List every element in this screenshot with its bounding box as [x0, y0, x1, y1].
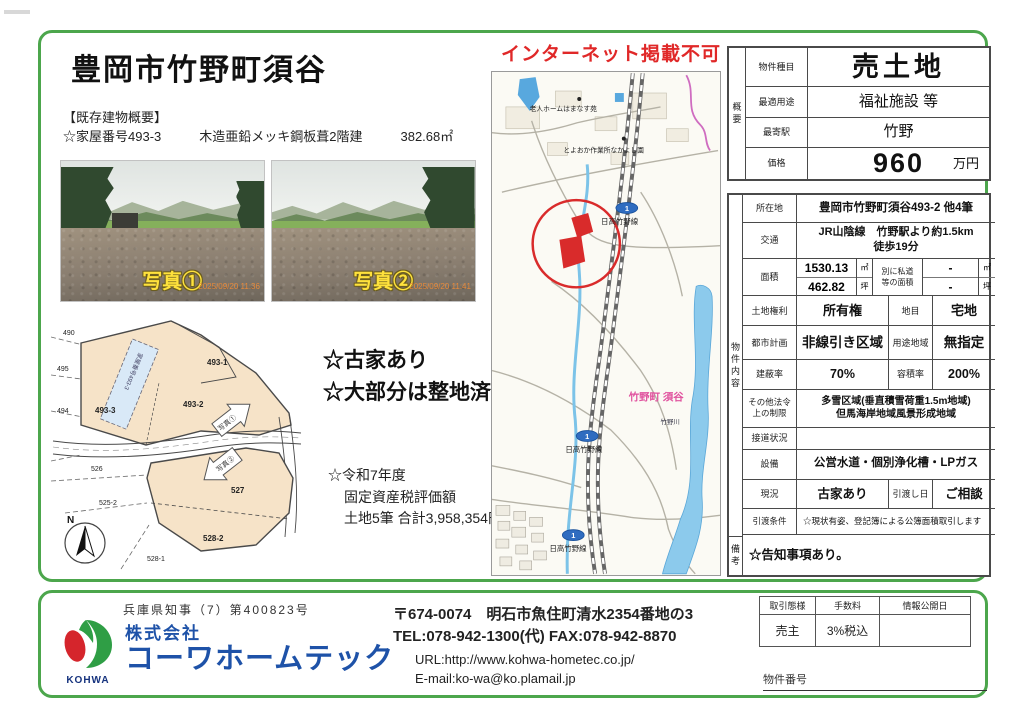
tax-label: 固定資産税評価額	[328, 487, 502, 509]
license-number: 兵庫県知事（7）第400823号	[123, 601, 310, 618]
property-type-value: 売土地	[808, 48, 989, 86]
route-number: 1	[625, 204, 629, 213]
row-label: 都市計画	[743, 326, 797, 359]
summary-section-strip: 概要	[729, 48, 746, 179]
summary-row-station: 最寄駅 竹野	[746, 118, 989, 148]
small-pond	[615, 93, 624, 102]
nearest-station-value: 竹野	[808, 118, 989, 147]
row-label: 所在地	[743, 195, 797, 222]
parcel-label-494: 494	[57, 408, 69, 415]
property-number-label: 物件番号	[763, 671, 807, 687]
flyer-page: 豊岡市竹野町須谷 【既存建物概要】 ☆家屋番号493-3 木造亜鉛メッキ鋼板葺2…	[0, 0, 1024, 724]
main-frame: 豊岡市竹野町須谷 【既存建物概要】 ☆家屋番号493-3 木造亜鉛メッキ鋼板葺2…	[38, 30, 988, 582]
row-label: その他法令 上の制限	[743, 390, 797, 427]
private-tsubo-unit: 坪	[979, 278, 995, 296]
parcel-label-493-2: 493-2	[183, 400, 204, 409]
detail-section-strip: 物件内容 備考	[729, 195, 743, 575]
row-coverage: 建蔽率 70% 容積率 200%	[743, 360, 995, 390]
transaction-table: 取引態様 手数料 情報公開日 売主 3%税込	[759, 596, 971, 647]
postal-address: 〒674-0074 明石市魚住町清水2354番地の3	[393, 604, 693, 626]
summary-section-label: 概要	[729, 48, 745, 179]
parcel-label-527: 527	[231, 486, 245, 495]
address-block: 〒674-0074 明石市魚住町清水2354番地の3 TEL:078-942-1…	[393, 604, 693, 648]
other-law-value: 多雪区域(垂直積雪荷重1.5m地域) 但馬海岸地域風景形成地域	[797, 390, 995, 427]
building-structure: 木造亜鉛メッキ鋼板葺2階建	[199, 126, 362, 145]
house-number: ☆家屋番号493-3	[63, 126, 161, 145]
row-label: 用途地域	[889, 326, 933, 359]
facility2-dot	[622, 137, 626, 141]
property-number-field: 物件番号	[763, 667, 987, 691]
utilities-value: 公営水道・個別浄化槽・LPガス	[797, 450, 995, 479]
row-label: 土地権利	[743, 296, 797, 325]
area-tsubo-value: 462.82	[797, 278, 856, 296]
floor-area-ratio-value: 200%	[933, 360, 995, 389]
cadastral-map: 家屋番号493-3 490 495 494 493-3 493-1 493-2 …	[51, 313, 303, 577]
compass-n-label: N	[67, 515, 74, 526]
best-use-value: 福祉施設 等	[808, 87, 989, 116]
private-m2-unit: ㎡	[979, 259, 995, 278]
route-number: 1	[571, 531, 575, 540]
tax-year: ☆令和7年度	[328, 465, 502, 487]
handover-date-value: ご相談	[933, 480, 995, 509]
private-tsubo-value: -	[923, 278, 978, 296]
company-name: コーワホームテック	[125, 644, 394, 676]
private-m2-value: -	[923, 259, 978, 278]
site-photo-2: 写真② 2025/09/20 11:41	[271, 160, 476, 302]
row-label: 物件種目	[746, 48, 808, 86]
photo1-caption: 写真①	[142, 265, 202, 294]
parcel-label-526: 526	[91, 466, 103, 473]
scan-artifact	[4, 10, 30, 14]
company-name-block: 株式会社 コーワホームテック	[125, 619, 394, 676]
route-name: 日高竹野線	[549, 543, 587, 553]
row-location: 所在地 豊岡市竹野町須谷493-2 他4筆	[743, 195, 995, 223]
row-road-contact: 接道状況	[743, 428, 995, 450]
company-url: URL:http://www.kohwa-hometec.co.jp/	[415, 651, 635, 670]
price-unit: 万円	[953, 155, 979, 173]
row-utilities: 設備 公営水道・個別浄化槽・LPガス	[743, 450, 995, 480]
row-label: 建蔽率	[743, 360, 797, 389]
parcel-label-493-3: 493-3	[95, 406, 116, 415]
photo-shed	[112, 213, 138, 228]
remarks-value: ☆告知事項あり。	[743, 535, 995, 575]
row-city-plan: 都市計画 非線引き区域 用途地域 無指定	[743, 326, 995, 360]
row-label: 価格	[746, 148, 808, 179]
row-remarks: ☆告知事項あり。	[743, 535, 995, 575]
row-label: 接道状況	[743, 428, 797, 449]
photo2-timestamp: 2025/09/20 11:41	[409, 282, 471, 291]
row-area: 面積 1530.13 462.82 ㎡ 坪 別に私道 等の面積 - -	[743, 259, 995, 297]
row-label: 交通	[743, 223, 797, 258]
transaction-type-value: 売主	[760, 615, 816, 646]
private-road-units: ㎡ 坪	[979, 259, 995, 296]
company-prefix: 株式会社	[125, 619, 394, 644]
area-m2-unit: ㎡	[857, 259, 872, 278]
row-current-state: 現況 古家あり 引渡し日 ご相談	[743, 480, 995, 510]
row-label: 設備	[743, 450, 797, 479]
summary-table: 概要 物件種目 売土地 最適用途 福祉施設 等 最寄駅 竹野 価格	[727, 46, 991, 181]
river-label: 竹野川	[661, 417, 680, 426]
private-road-label: 別に私道 等の面積	[873, 259, 923, 296]
location-map: 老人ホームはまなす苑 とよおか作業所なかよし園 1 日高竹野線 1 日高竹野線 …	[491, 71, 721, 576]
land-rights-value: 所有権	[797, 296, 889, 325]
city-plan-value: 非線引き区域	[797, 326, 889, 359]
tax-notes: ☆令和7年度 固定資産税評価額 土地5筆 合計3,958,354円	[328, 465, 502, 530]
area-label: 竹野町 須谷	[628, 390, 684, 403]
row-access: 交通 JR山陰線 竹野駅より約1.5km 徒歩19分	[743, 223, 995, 259]
area-numbers: 1530.13 462.82	[797, 259, 857, 296]
transaction-type-header: 取引態様	[760, 597, 816, 614]
parcel-label-525-2: 525-2	[99, 500, 117, 507]
detail-table: 物件内容 備考 所在地 豊岡市竹野町須谷493-2 他4筆 交通 JR山陰線 竹…	[727, 193, 991, 577]
row-handover-terms: 引渡条件 ☆現状有姿、登記簿による公簿面積取引します	[743, 509, 995, 535]
access-value: JR山陰線 竹野駅より約1.5km 徒歩19分	[797, 223, 995, 258]
area-units: ㎡ 坪	[857, 259, 873, 296]
company-email: E-mail:ko-wa@ko.plamail.jp	[415, 670, 635, 689]
footer-frame: 兵庫県知事（7）第400823号 KOHWA 株式会社 コーワホームテック 〒6…	[38, 590, 988, 698]
land-category-value: 宅地	[933, 296, 995, 325]
road-contact-value	[797, 428, 995, 449]
route-number: 1	[585, 432, 589, 441]
internet-prohibited-notice: インターネット掲載不可	[491, 39, 731, 66]
row-label: 容積率	[889, 360, 933, 389]
building-overview-line: ☆家屋番号493-3 木造亜鉛メッキ鋼板葺2階建 382.68㎡	[63, 126, 491, 145]
row-label: 地目	[889, 296, 933, 325]
disclosure-date-header: 情報公開日	[880, 597, 970, 614]
kohwa-logo-icon	[62, 619, 114, 669]
company-logo: KOHWA	[57, 619, 119, 686]
row-other-law: その他法令 上の制限 多雪区域(垂直積雪荷重1.5m地域) 但馬海岸地域風景形成…	[743, 390, 995, 428]
building-coverage-value: 70%	[797, 360, 889, 389]
private-road-values: - -	[923, 259, 979, 296]
route-name: 日高竹野線	[601, 216, 639, 226]
disclosure-date-value	[880, 615, 970, 646]
transaction-table-values: 売主 3%税込	[760, 615, 970, 646]
photo2-caption: 写真②	[353, 265, 413, 294]
building-floor-area: 382.68㎡	[400, 126, 453, 145]
price-number: 960	[873, 145, 924, 181]
transaction-table-header: 取引態様 手数料 情報公開日	[760, 597, 970, 615]
facility1-dot	[577, 97, 581, 101]
fee-value: 3%税込	[816, 615, 880, 646]
facility2-label: とよおか作業所なかよし園	[563, 146, 644, 155]
summary-row-use: 最適用途 福祉施設 等	[746, 87, 989, 117]
parcel-label-528-2: 528-2	[203, 534, 224, 543]
detail-section-label: 物件内容	[729, 195, 742, 537]
page-title: 豊岡市竹野町須谷	[71, 45, 327, 89]
fee-header: 手数料	[816, 597, 880, 614]
price-value: 960 万円	[808, 148, 989, 179]
tax-amount: 土地5筆 合計3,958,354円	[328, 508, 502, 530]
tel-fax: TEL:078-942-1300(代) FAX:078-942-8870	[393, 626, 693, 648]
kohwa-logo-text: KOHWA	[57, 675, 119, 686]
route-name: 日高竹野線	[565, 444, 603, 454]
area-tsubo-unit: 坪	[857, 278, 872, 296]
current-state-value: 古家あり	[797, 480, 889, 509]
site-photo-1: 写真① 2025/09/20 11:36	[60, 160, 265, 302]
web-contact-block: URL:http://www.kohwa-hometec.co.jp/ E-ma…	[415, 651, 635, 689]
row-label: 現況	[743, 480, 797, 509]
parcel-label-528-1: 528-1	[147, 556, 165, 563]
row-rights: 土地権利 所有権 地目 宅地	[743, 296, 995, 326]
area-m2-value: 1530.13	[797, 259, 856, 278]
handover-terms-value: ☆現状有姿、登記簿による公簿面積取引します	[797, 509, 995, 534]
parcel-label-493-1: 493-1	[207, 358, 228, 367]
location-value: 豊岡市竹野町須谷493-2 他4筆	[797, 195, 995, 222]
facility1-label: 老人ホームはまなす苑	[530, 104, 597, 113]
summary-row-price: 価格 960 万円	[746, 148, 989, 179]
row-label: 最寄駅	[746, 118, 808, 147]
photo1-timestamp: 2025/09/20 11:36	[198, 282, 260, 291]
row-label: 引渡条件	[743, 509, 797, 534]
remarks-section-label: 備考	[729, 537, 742, 575]
row-label: 面積	[743, 259, 797, 296]
row-label: 最適用途	[746, 87, 808, 116]
zoning-value: 無指定	[933, 326, 995, 359]
row-label: 引渡し日	[889, 480, 933, 509]
summary-row-type: 物件種目 売土地	[746, 48, 989, 87]
building-overview-heading: 【既存建物概要】	[63, 107, 167, 126]
parcel-label-495: 495	[57, 366, 69, 373]
parcel-label-490: 490	[63, 330, 75, 337]
